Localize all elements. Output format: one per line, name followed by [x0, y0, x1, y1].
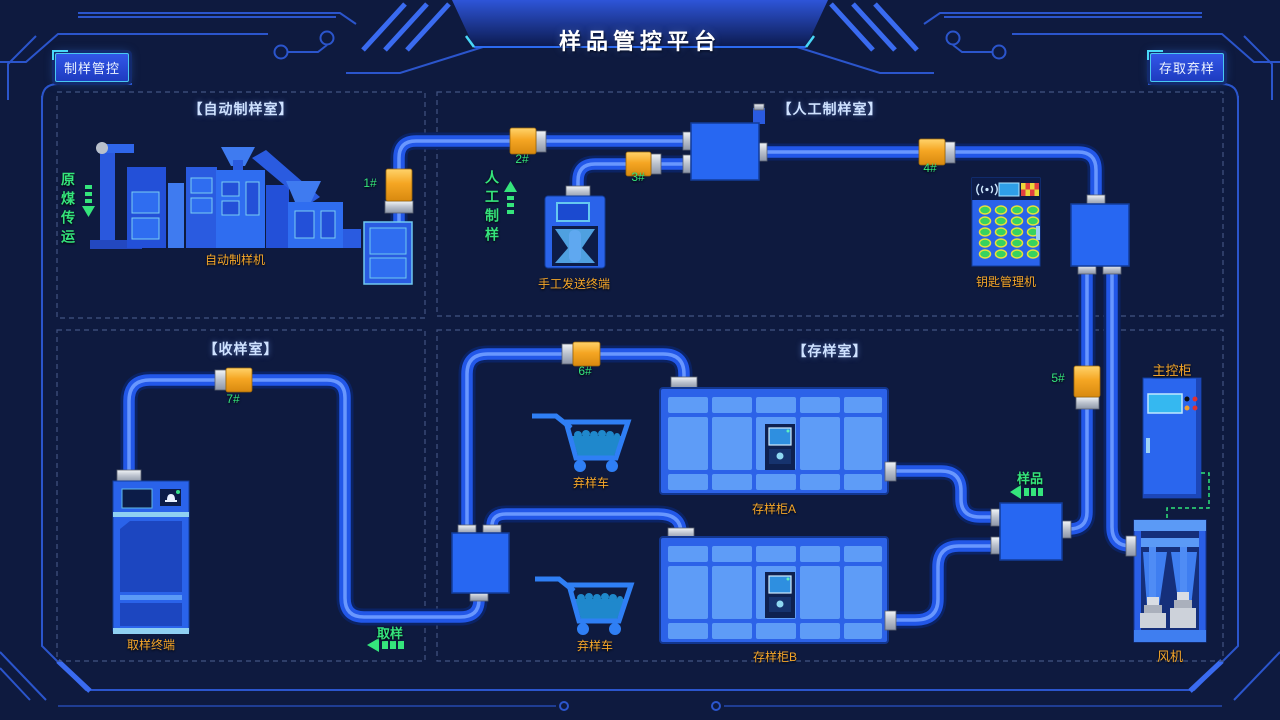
junction-box-sample: [991, 503, 1071, 560]
junction-box-1: [683, 104, 767, 180]
valve-2[interactable]: [510, 128, 546, 154]
manual-send-terminal[interactable]: [545, 186, 605, 268]
sampling-terminal-machine[interactable]: [113, 470, 189, 634]
valve-7[interactable]: [215, 368, 252, 392]
fan-machine[interactable]: [1126, 520, 1206, 642]
cabinet-b-console: [765, 572, 795, 618]
valve-6[interactable]: [562, 342, 600, 366]
valve-5[interactable]: [1074, 366, 1100, 409]
cabinet-a-console: [765, 424, 795, 470]
sampling-flow-arrow: [367, 638, 404, 652]
key-manager-machine[interactable]: [972, 178, 1040, 266]
terminal-screen: [122, 489, 152, 508]
auto-sampler-machine[interactable]: [90, 142, 361, 249]
valve-3[interactable]: [626, 152, 661, 176]
valve-1[interactable]: [385, 169, 413, 213]
discard-cart-a[interactable]: [532, 416, 628, 472]
valve-4[interactable]: [919, 139, 955, 165]
sample-control-dashboard: .po{stroke:#0b2364;stroke-width:17;fill:…: [0, 0, 1280, 720]
checker-flag-icon: [1021, 183, 1039, 196]
auto-sampler-outlet-box: [364, 222, 412, 284]
storage-cabinet-a[interactable]: [660, 377, 896, 494]
store-discard-button[interactable]: 存取弃样: [1150, 53, 1224, 82]
storage-cabinet-b[interactable]: [660, 528, 896, 643]
raw-coal-flow-arrow: [82, 185, 95, 217]
control-screen: [1148, 394, 1182, 413]
bell-icon: [160, 489, 181, 506]
manual-prep-flow-arrow: [504, 181, 517, 214]
junction-box-4: [452, 525, 509, 601]
sample-prep-control-button[interactable]: 制样管控: [55, 53, 129, 82]
main-control-cabinet[interactable]: [1143, 378, 1201, 498]
schematic-canvas: .po{stroke:#0b2364;stroke-width:17;fill:…: [0, 0, 1280, 720]
sample-flow-arrow: [1010, 485, 1043, 499]
key-machine-screen: [999, 183, 1019, 196]
discard-cart-b[interactable]: [535, 579, 631, 635]
title-banner: [452, 0, 828, 47]
junction-box-2: [1071, 195, 1129, 274]
